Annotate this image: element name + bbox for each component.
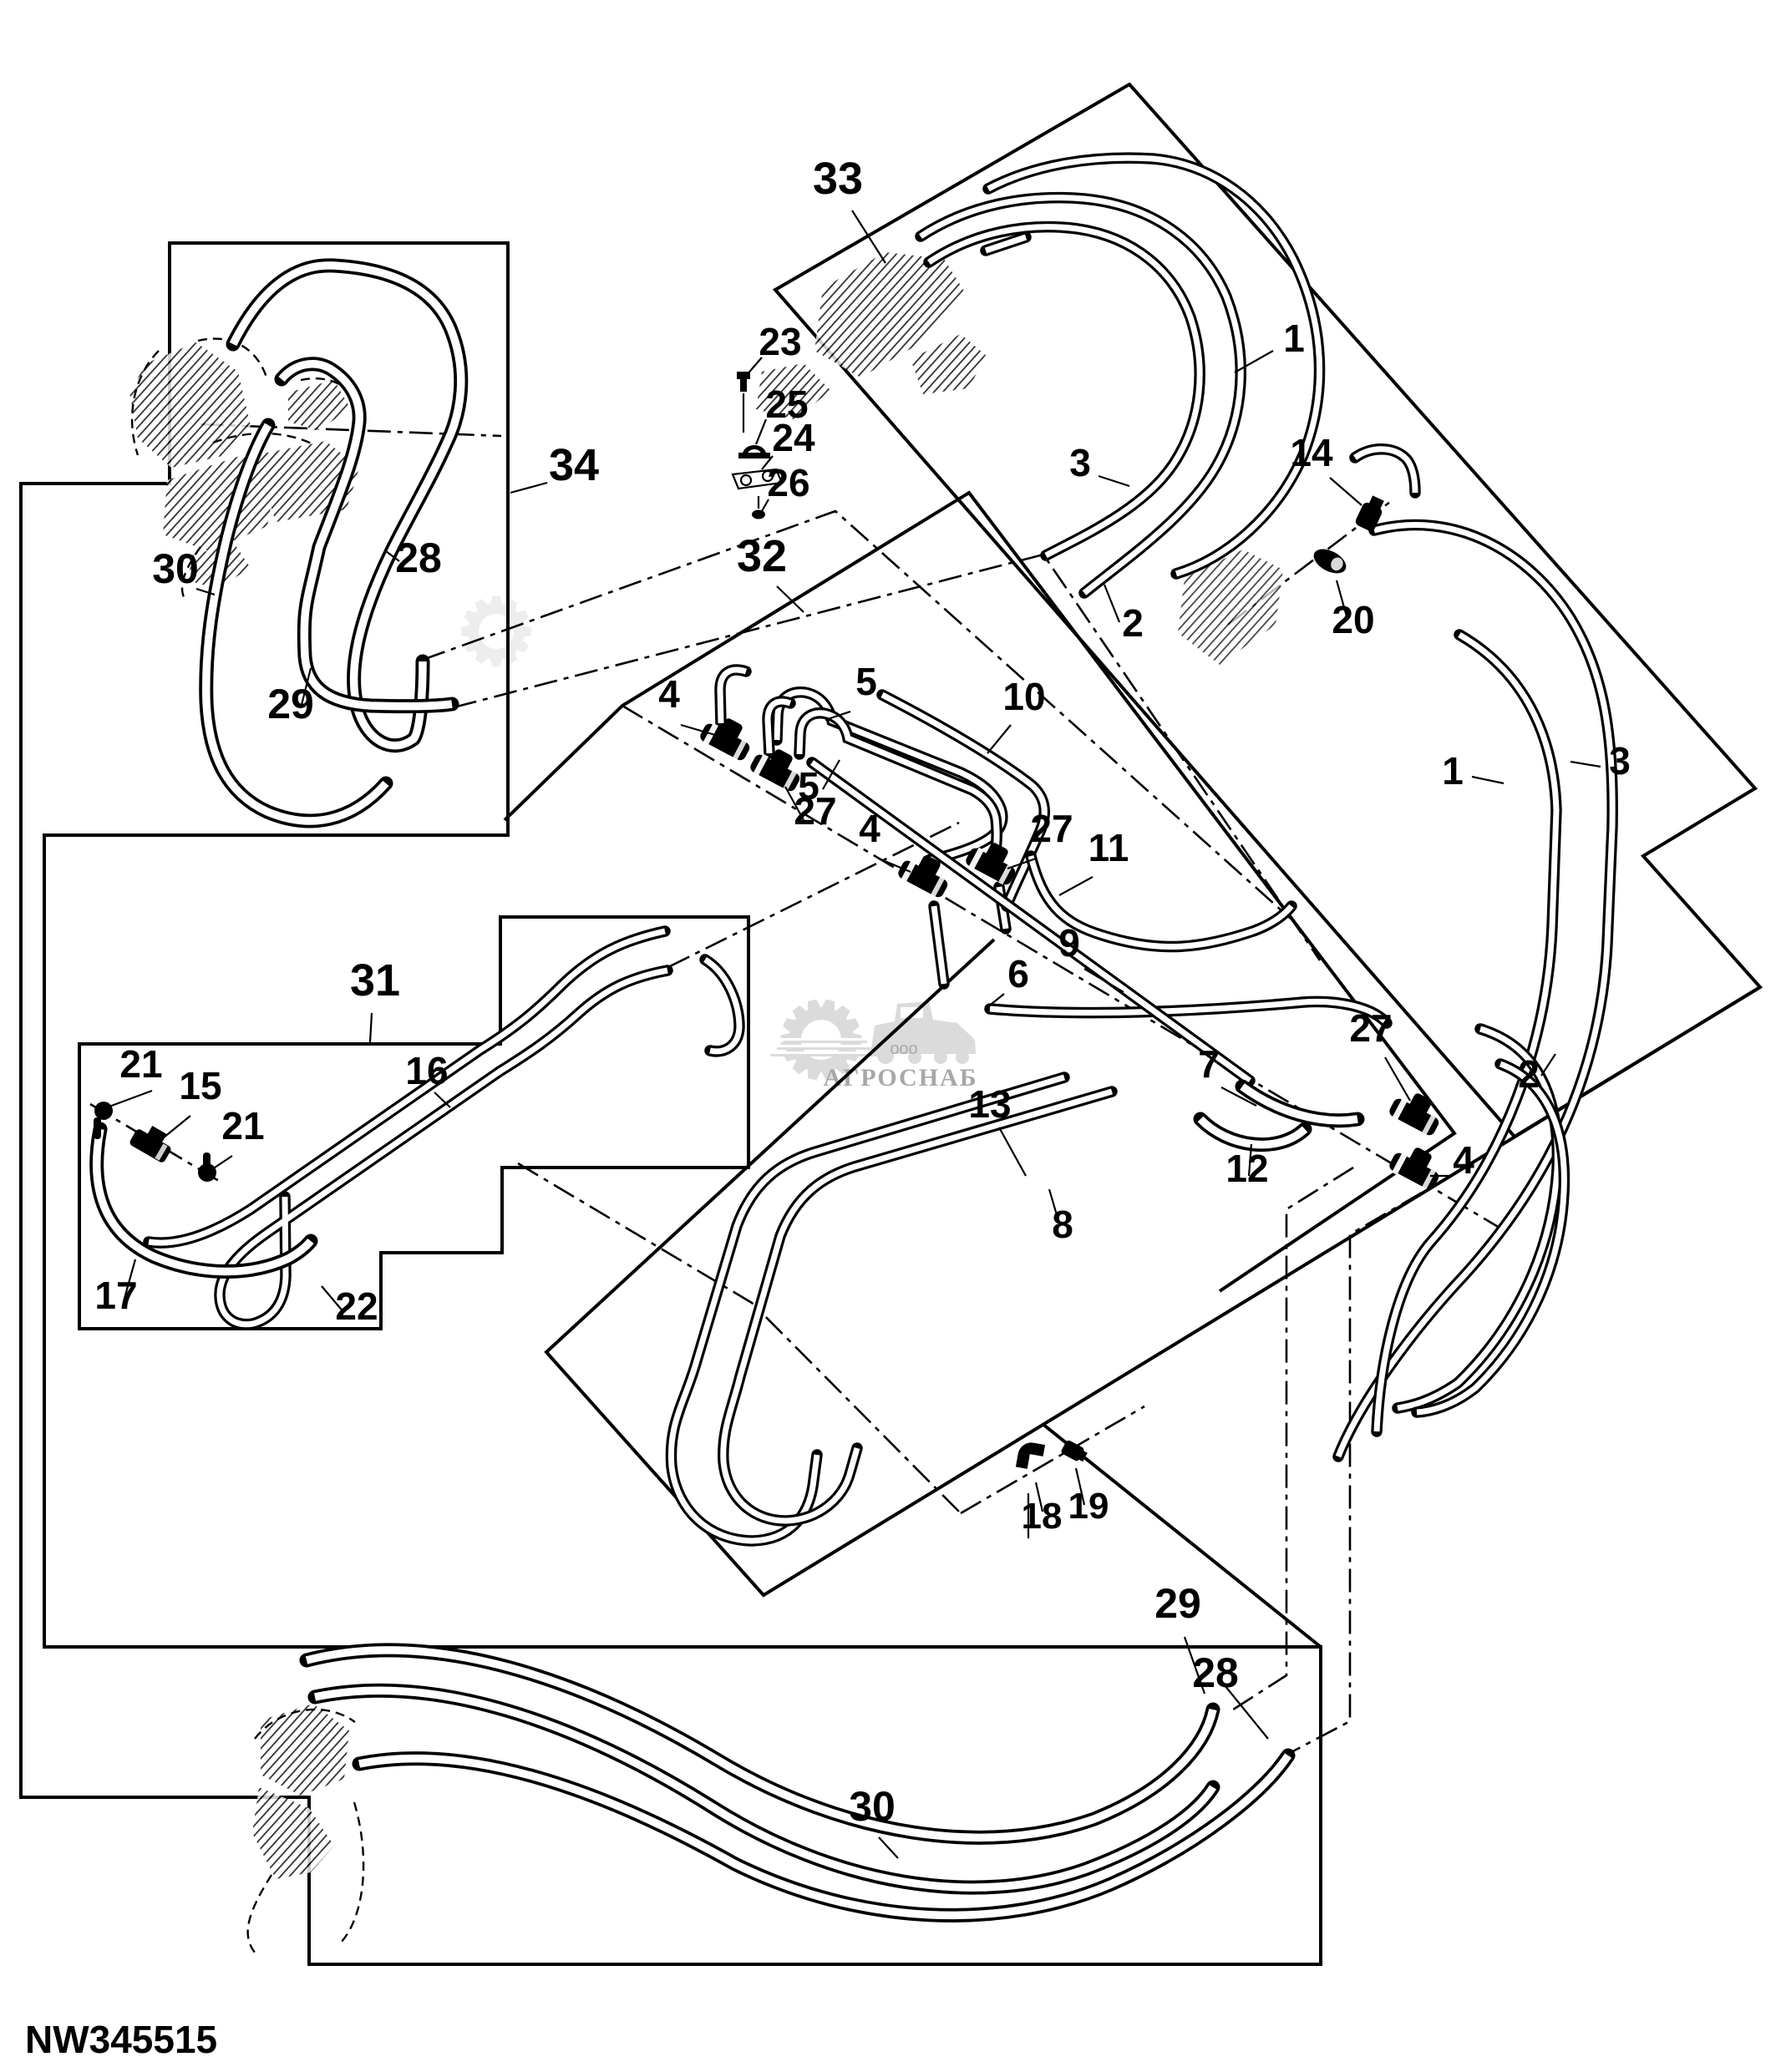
svg-text:11: 11 [1088, 826, 1129, 869]
svg-text:31: 31 [350, 955, 400, 1006]
svg-text:1: 1 [1442, 749, 1464, 793]
svg-text:19: 19 [1068, 1486, 1109, 1527]
svg-text:3: 3 [1609, 739, 1631, 783]
svg-text:22: 22 [335, 1284, 378, 1328]
svg-text:30: 30 [849, 1783, 896, 1830]
svg-text:NW345515: NW345515 [25, 2018, 217, 2061]
svg-text:4: 4 [1453, 1138, 1474, 1182]
svg-text:6: 6 [1007, 952, 1029, 995]
svg-text:9: 9 [1058, 921, 1080, 965]
svg-text:27: 27 [1030, 807, 1073, 850]
svg-text:3: 3 [1069, 441, 1091, 484]
svg-text:29: 29 [267, 681, 314, 727]
svg-text:16: 16 [405, 1049, 448, 1092]
svg-text:5: 5 [855, 660, 877, 703]
svg-text:14: 14 [1290, 431, 1333, 474]
svg-text:32: 32 [737, 531, 787, 581]
svg-text:21: 21 [221, 1104, 264, 1147]
svg-text:29: 29 [1154, 1580, 1201, 1627]
svg-text:26: 26 [767, 461, 809, 504]
svg-text:20: 20 [1332, 598, 1374, 641]
svg-text:1: 1 [1283, 317, 1305, 360]
svg-text:23: 23 [759, 320, 801, 363]
svg-text:2: 2 [1518, 1052, 1540, 1096]
svg-text:21: 21 [119, 1042, 162, 1086]
svg-text:30: 30 [152, 545, 199, 592]
svg-text:18: 18 [1022, 1496, 1063, 1537]
svg-text:17: 17 [94, 1274, 137, 1317]
svg-text:28: 28 [395, 534, 442, 581]
svg-text:7: 7 [1198, 1042, 1220, 1086]
svg-text:4: 4 [658, 672, 680, 716]
svg-text:12: 12 [1225, 1147, 1268, 1190]
svg-text:28: 28 [1192, 1649, 1239, 1696]
svg-text:27: 27 [794, 789, 836, 833]
svg-text:24: 24 [772, 416, 815, 459]
svg-text:13: 13 [968, 1082, 1011, 1126]
svg-text:33: 33 [813, 154, 863, 204]
svg-text:10: 10 [1002, 675, 1045, 718]
svg-text:27: 27 [1349, 1006, 1392, 1050]
svg-text:34: 34 [549, 440, 599, 490]
svg-text:15: 15 [179, 1064, 221, 1107]
svg-text:2: 2 [1122, 601, 1144, 645]
svg-text:ооо: ооо [890, 1040, 917, 1058]
svg-text:4: 4 [859, 807, 880, 850]
